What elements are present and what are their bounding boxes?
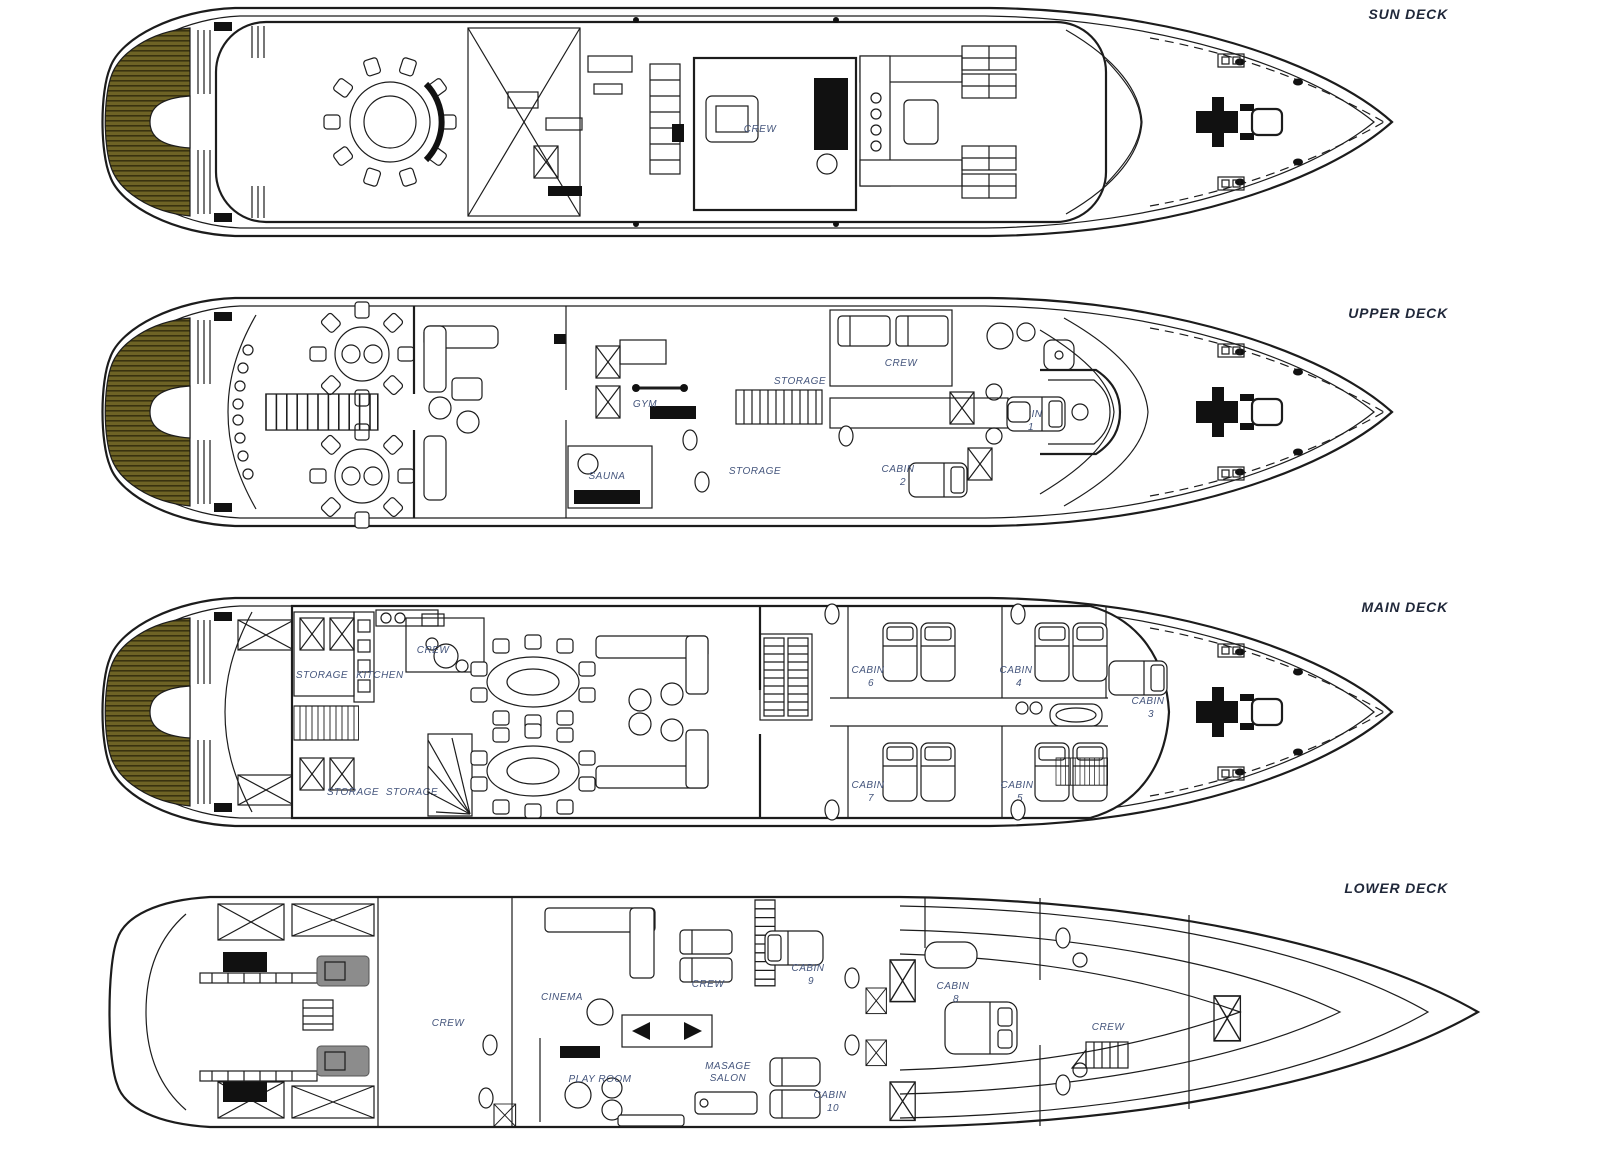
room-label-cinema: CINEMA xyxy=(541,992,583,1003)
room-label-storage-aft: STORAGE xyxy=(296,670,348,681)
room-label-cabin6: CABIN xyxy=(851,665,884,676)
aft-dining-table xyxy=(310,302,414,406)
room-label-cabin9-number: 9 xyxy=(808,976,814,987)
room-label-cabin3-number: 3 xyxy=(1148,709,1154,720)
room-label-cabin2-number: 2 xyxy=(899,477,906,488)
room-label-cabin10: CABIN xyxy=(813,1090,846,1101)
yacht-deck-plans: CREW SUN DECK xyxy=(0,0,1600,1150)
room-label-crew-fwd: CREW xyxy=(1092,1022,1126,1033)
generator-icon xyxy=(223,1082,267,1102)
room-label-gym: GYM xyxy=(633,399,657,410)
room-label-cabin6-number: 6 xyxy=(868,678,874,689)
upper-deck-plan: GYM SAUNA STORAGE STORAGE CREW CABIN 1 xyxy=(103,298,1393,528)
toilet-icon xyxy=(695,472,709,492)
room-label-cabin8: CABIN xyxy=(936,981,969,992)
room-label-sauna: SAUNA xyxy=(589,471,626,482)
bathtub-icon xyxy=(925,942,977,968)
deck-plan-sheet: CREW SUN DECK xyxy=(0,0,1600,1150)
room-label-crew: CREW xyxy=(417,645,451,656)
room-label-cabin9: CABIN xyxy=(791,963,824,974)
room-label-crew-port: CREW xyxy=(432,1018,466,1029)
room-label-cabin7: CABIN xyxy=(851,780,884,791)
room-label-salon: SALON xyxy=(710,1073,747,1084)
room-label-cabin4-number: 4 xyxy=(1016,678,1022,689)
aft-dining-table xyxy=(310,424,414,528)
toilet-icon xyxy=(839,426,853,446)
room-label-storage-fwd1: STORAGE xyxy=(327,787,379,798)
room-label-crew-mid: CREW xyxy=(692,979,726,990)
room-label-cabin8-number: 8 xyxy=(953,994,959,1005)
room-label-crew: CREW xyxy=(744,124,778,135)
room-label-kitchen: KITCHEN xyxy=(356,670,404,681)
room-label-storage-top: STORAGE xyxy=(774,376,826,387)
room-label-play-room: PLAY ROOM xyxy=(568,1074,631,1085)
room-label-cabin4: CABIN xyxy=(999,665,1032,676)
deck-title-main: MAIN DECK xyxy=(1361,599,1448,615)
room-label-masage: MASAGE xyxy=(705,1061,751,1072)
toilet-icon xyxy=(483,1035,497,1055)
lower-deck-plan: CREW CINEMA CREW P xyxy=(110,897,1479,1127)
generator-icon xyxy=(223,952,267,972)
helm-seat xyxy=(1008,402,1030,422)
main-deck-plan: STORAGE KITCHEN CREW STORAGE STORAGE xyxy=(103,598,1393,826)
crew-cabin-mid: CREW xyxy=(680,930,732,990)
console xyxy=(814,78,848,150)
room-label-cabin1-number: 1 xyxy=(1028,422,1034,433)
toilet-icon xyxy=(683,430,697,450)
tv-icon xyxy=(554,334,566,344)
room-label-cabin7-number: 7 xyxy=(868,793,874,804)
deck-title-lower: LOWER DECK xyxy=(1344,880,1448,896)
deck-title-upper: UPPER DECK xyxy=(1348,305,1448,321)
room-label-storage-bottom: STORAGE xyxy=(729,466,781,477)
room-label-cabin10-number: 10 xyxy=(827,1103,839,1114)
room-label-cabin3: CABIN xyxy=(1131,696,1164,707)
sun-deck-plan: CREW xyxy=(103,8,1393,236)
room-label-storage-fwd2: STORAGE xyxy=(386,787,438,798)
room-label-cabin2: CABIN xyxy=(881,464,914,475)
toilet-icon xyxy=(479,1088,493,1108)
deck-title-sun: SUN DECK xyxy=(1368,6,1448,22)
room-label-cabin5: CABIN xyxy=(1000,780,1033,791)
room-label-crew: CREW xyxy=(885,358,919,369)
